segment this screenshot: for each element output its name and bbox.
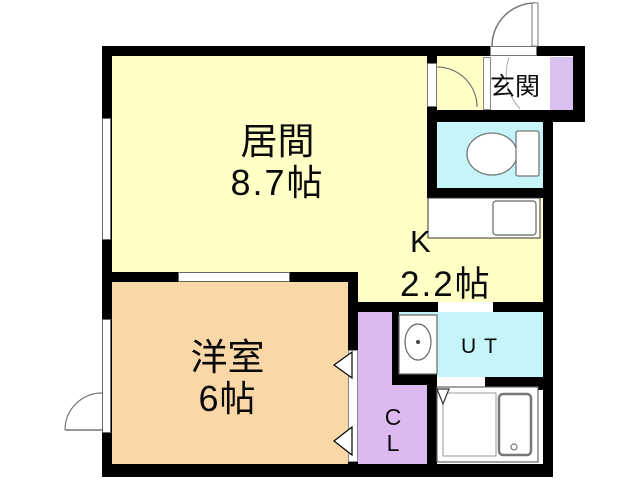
closet-opening (348, 350, 358, 462)
wall-right (543, 110, 553, 477)
wall-entrance-bottom (427, 110, 585, 122)
living-doorway (427, 63, 437, 107)
western-room-size: 6帖 (140, 378, 315, 419)
closet-label: C L (380, 404, 406, 456)
western-room-name: 洋室 (140, 337, 315, 378)
entrance-doorway (490, 46, 537, 56)
closet-label-line2: L (380, 430, 406, 456)
closet-floor-upper (358, 307, 392, 387)
utility-label: UT (461, 335, 505, 359)
wall-washer-south (392, 374, 437, 385)
living-window (102, 118, 111, 240)
western-room-label: 洋室 6帖 (140, 337, 315, 419)
wall-toilet-bottom (427, 188, 553, 198)
utility-bath-opening (437, 377, 485, 390)
kitchen-label: K (410, 224, 431, 260)
living-room-size: 8.7帖 (190, 162, 365, 203)
bathroom-floor (437, 390, 543, 464)
wall-closet-bath (427, 385, 437, 464)
entrance-door-swing-icon (492, 3, 535, 46)
wall-bottom (102, 464, 553, 477)
living-western-window (178, 272, 290, 282)
entrance-door-leaf (532, 3, 538, 46)
toilet-floor (437, 120, 543, 188)
wall-closet-washer (392, 302, 399, 385)
living-room-label: 居間 8.7帖 (190, 121, 365, 203)
western-room-terrace-opening (102, 319, 111, 433)
western-door-swing-icon (65, 393, 102, 430)
entrance-label: 玄関 (490, 67, 540, 103)
shoe-cabinet (550, 57, 573, 110)
kitchen-size-label: 2.2帖 (400, 256, 492, 307)
floor-plan: 居間 8.7帖 洋室 6帖 K 2.2帖 玄関 UT C L (0, 0, 640, 480)
living-room-name: 居間 (190, 121, 365, 162)
closet-label-line1: C (380, 404, 406, 430)
